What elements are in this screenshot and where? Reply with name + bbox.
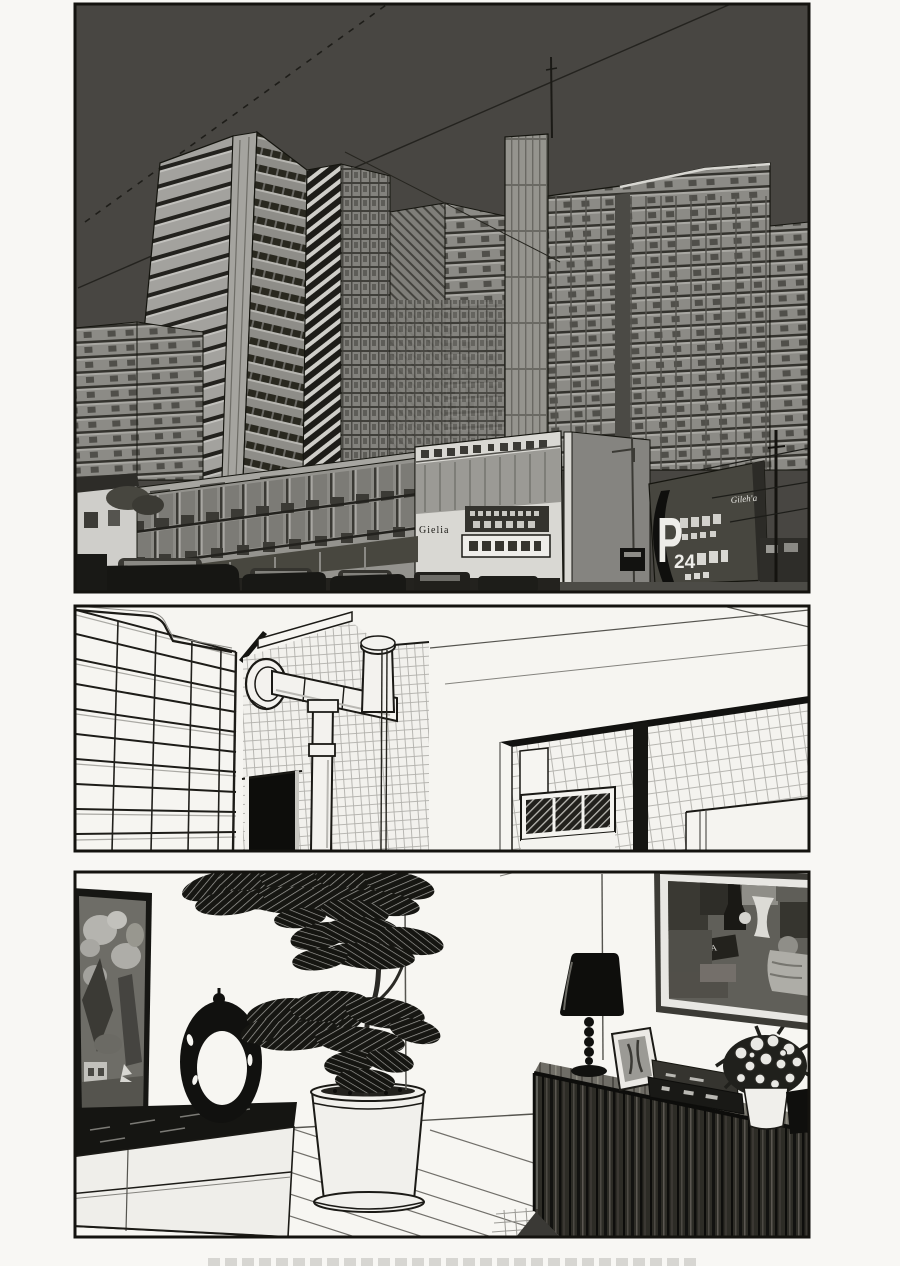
svg-text:Gielia: Gielia — [419, 525, 449, 536]
svg-text:24: 24 — [674, 552, 696, 573]
